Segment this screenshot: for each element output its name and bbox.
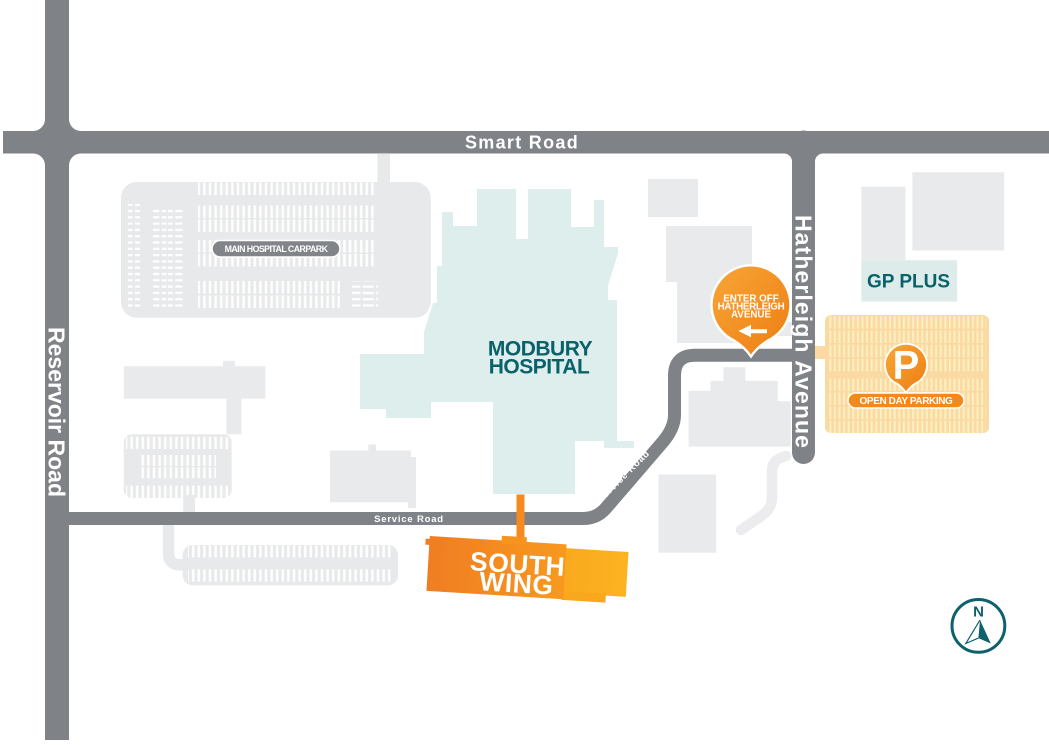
- svg-text:AVENUE: AVENUE: [731, 309, 772, 320]
- svg-text:HOSPITAL: HOSPITAL: [489, 356, 590, 379]
- svg-text:Smart Road: Smart Road: [465, 133, 579, 153]
- svg-text:Service Road: Service Road: [374, 514, 444, 525]
- svg-text:Reservoir Road: Reservoir Road: [44, 327, 70, 497]
- svg-text:GP PLUS: GP PLUS: [867, 272, 950, 293]
- svg-text:Hatherleigh Avenue: Hatherleigh Avenue: [791, 215, 817, 449]
- svg-text:WING: WING: [479, 566, 555, 600]
- svg-text:MAIN HOSPITAL CARPARK: MAIN HOSPITAL CARPARK: [225, 244, 329, 254]
- svg-text:P: P: [893, 344, 920, 388]
- svg-text:N: N: [973, 604, 984, 621]
- svg-text:OPEN DAY PARKING: OPEN DAY PARKING: [860, 396, 954, 407]
